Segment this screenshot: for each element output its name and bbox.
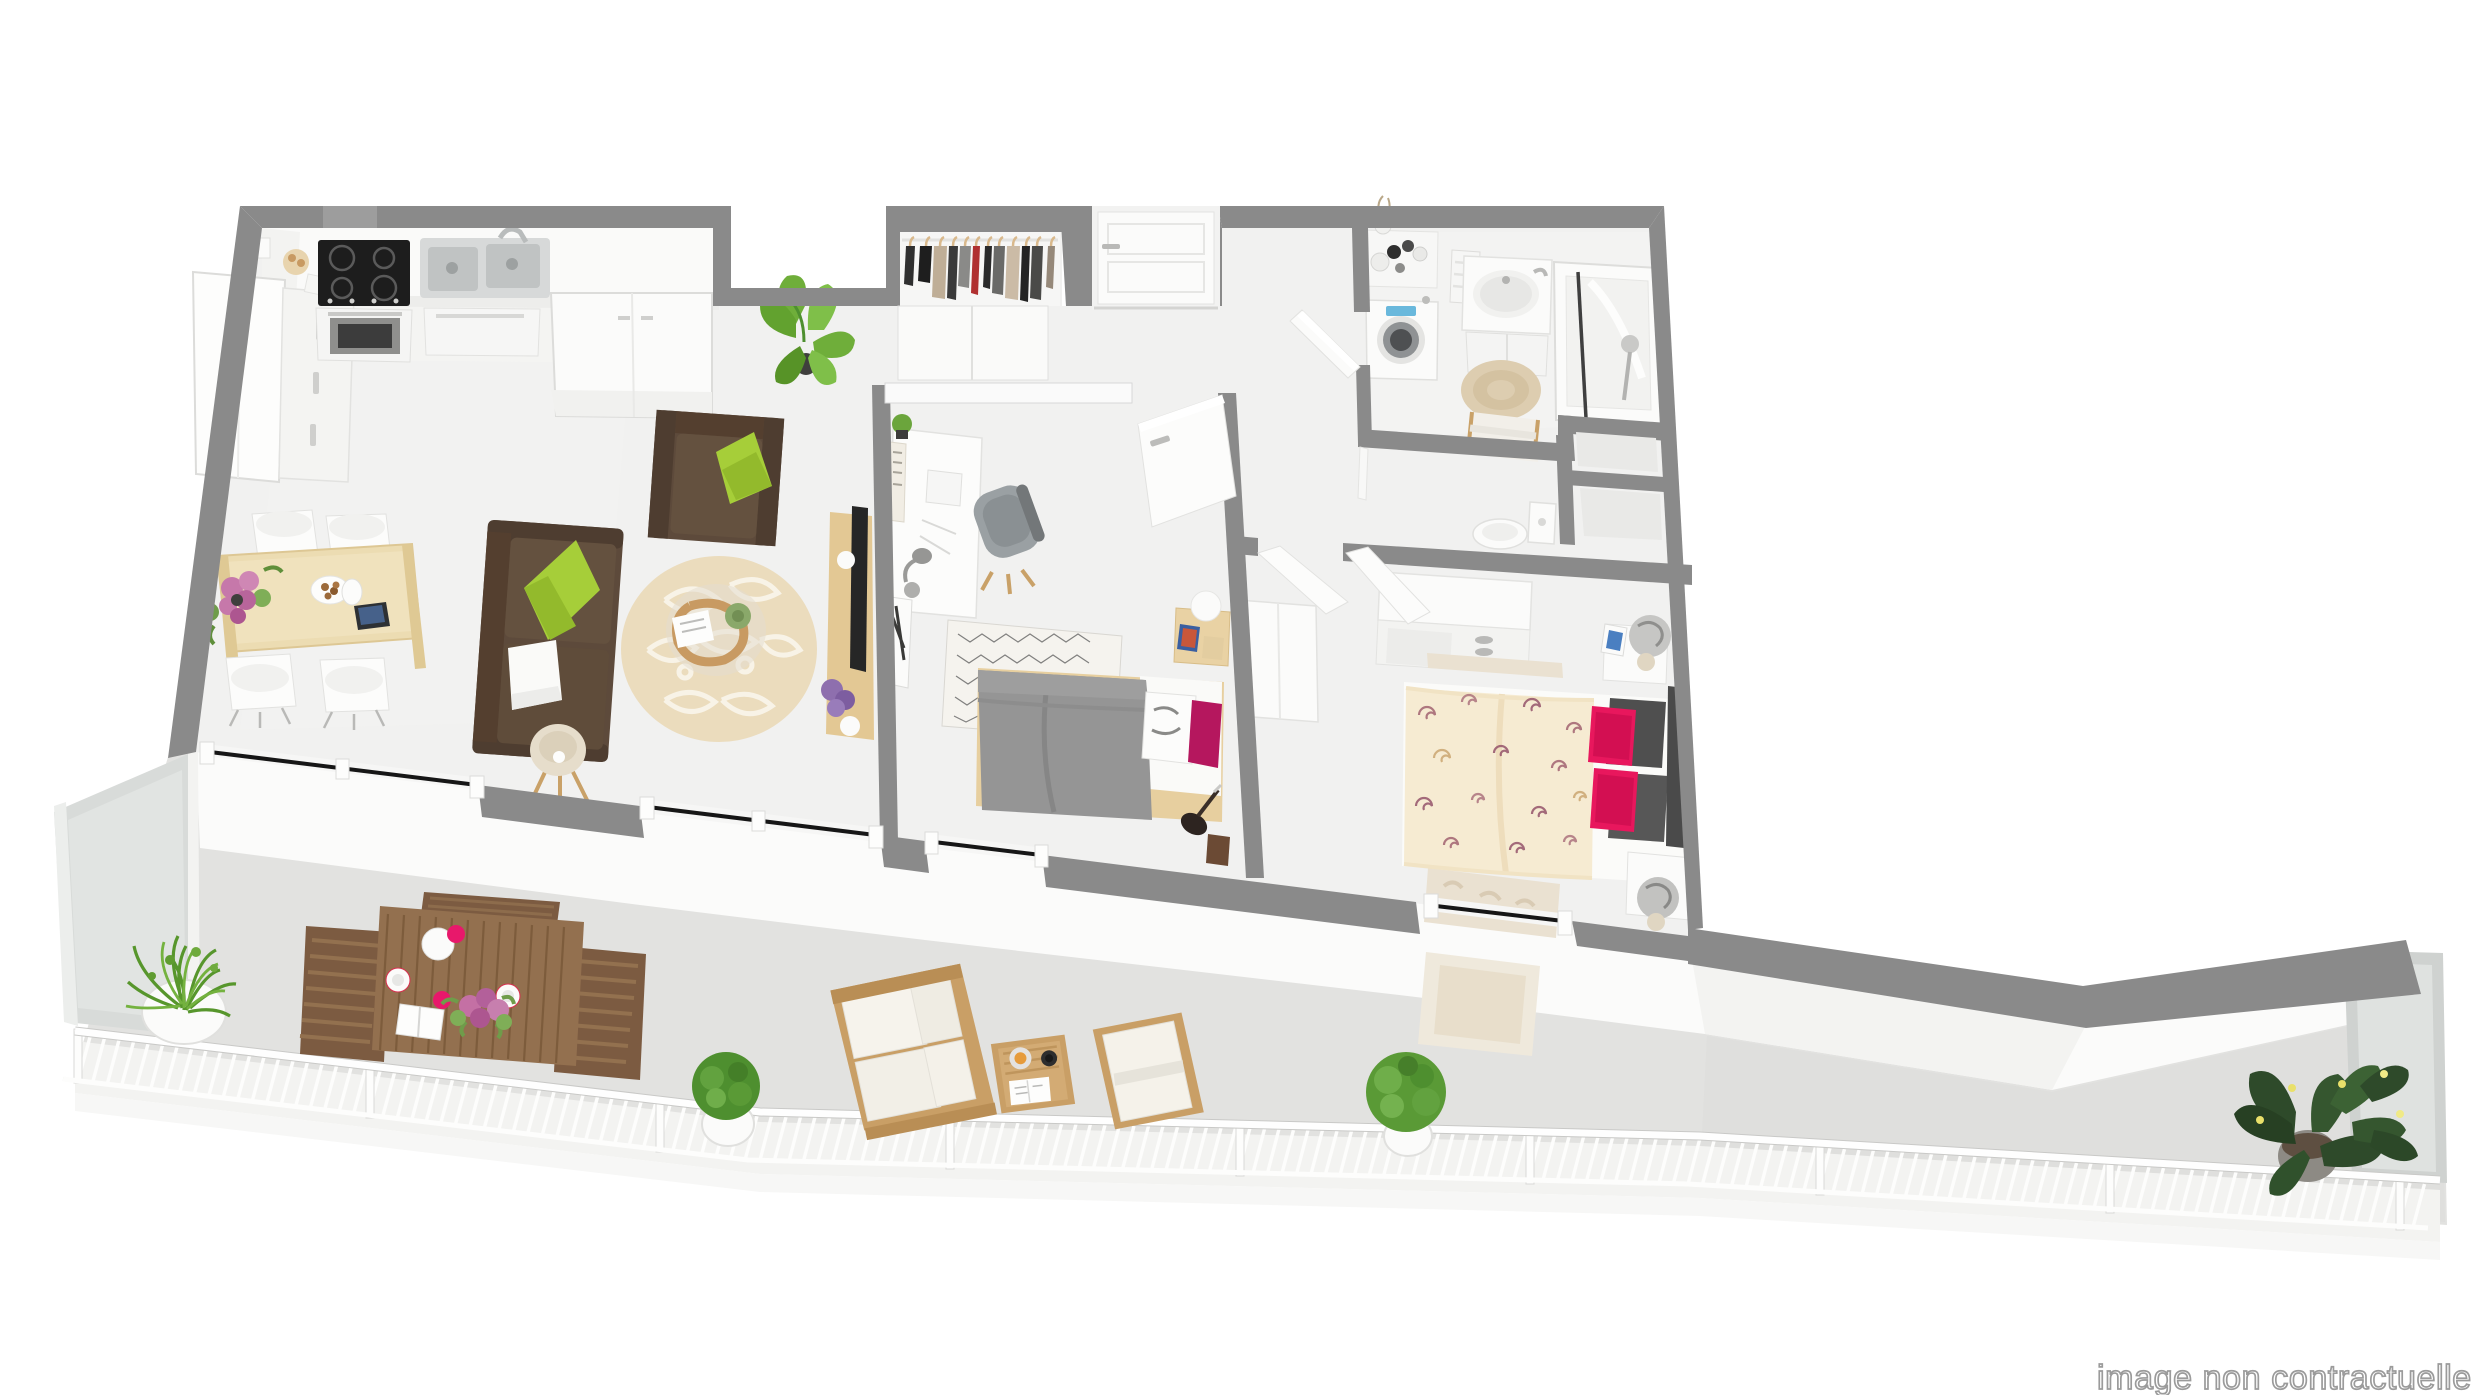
svg-text:image non contractuelle: image non contractuelle [2097,1359,2472,1395]
